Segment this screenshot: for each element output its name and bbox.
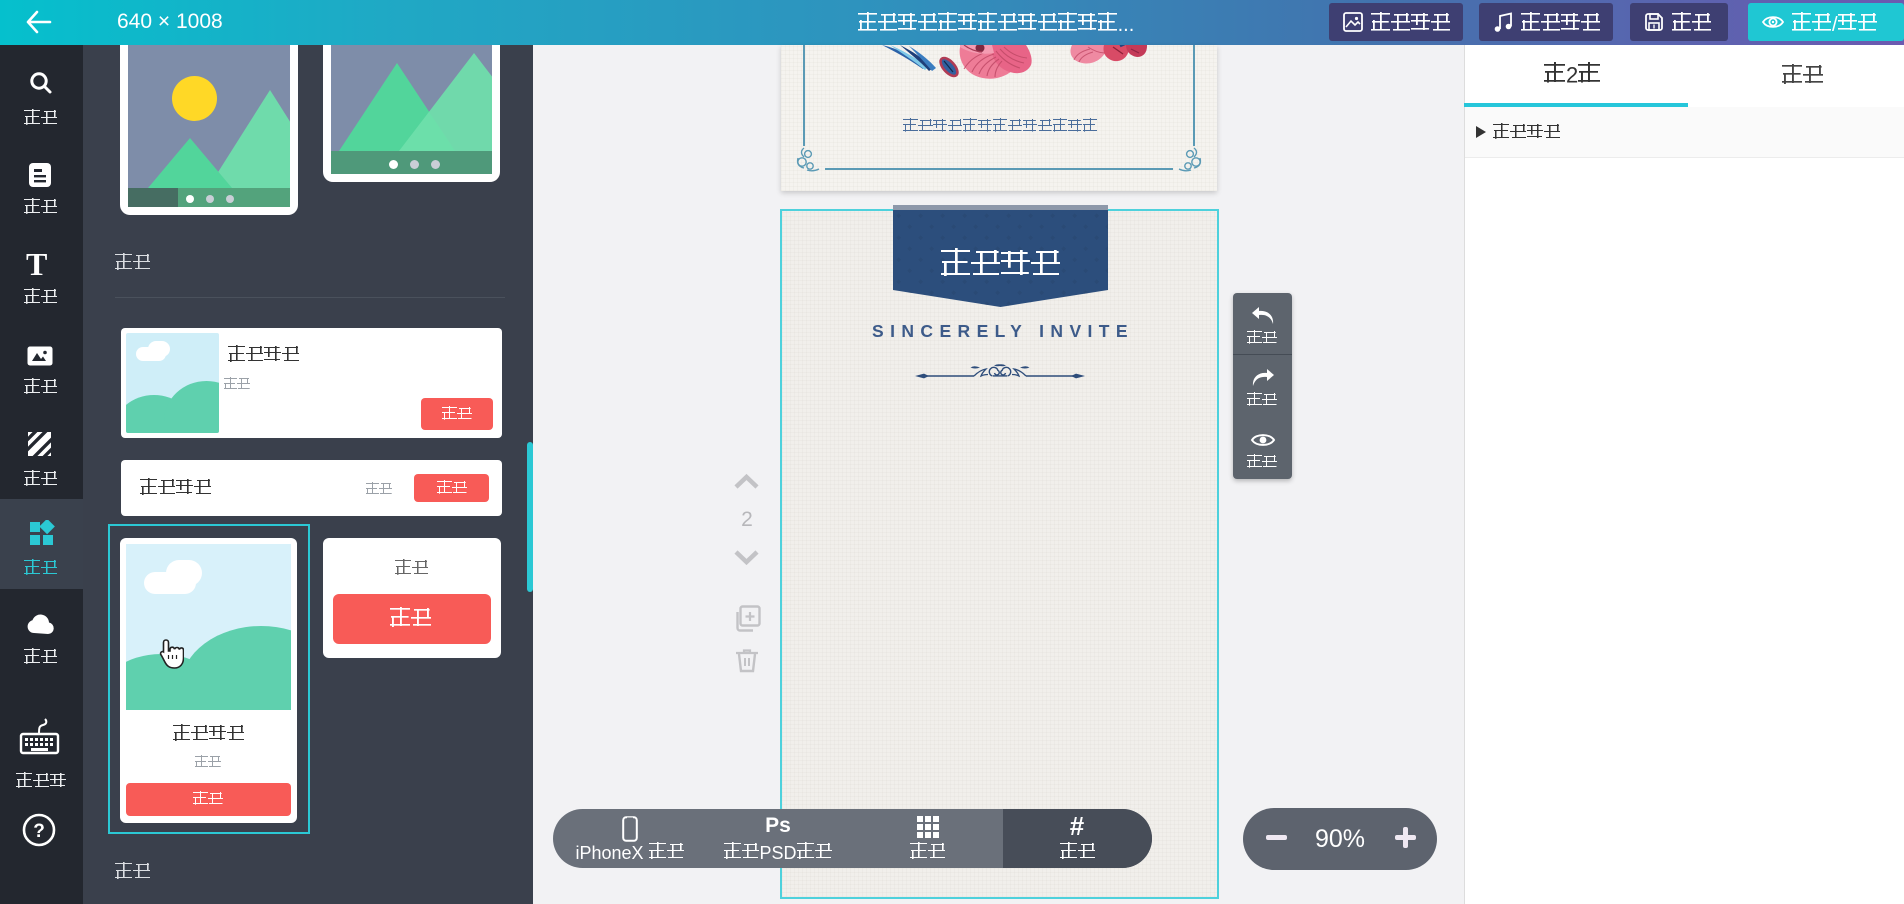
svg-text:?: ? — [33, 821, 45, 842]
